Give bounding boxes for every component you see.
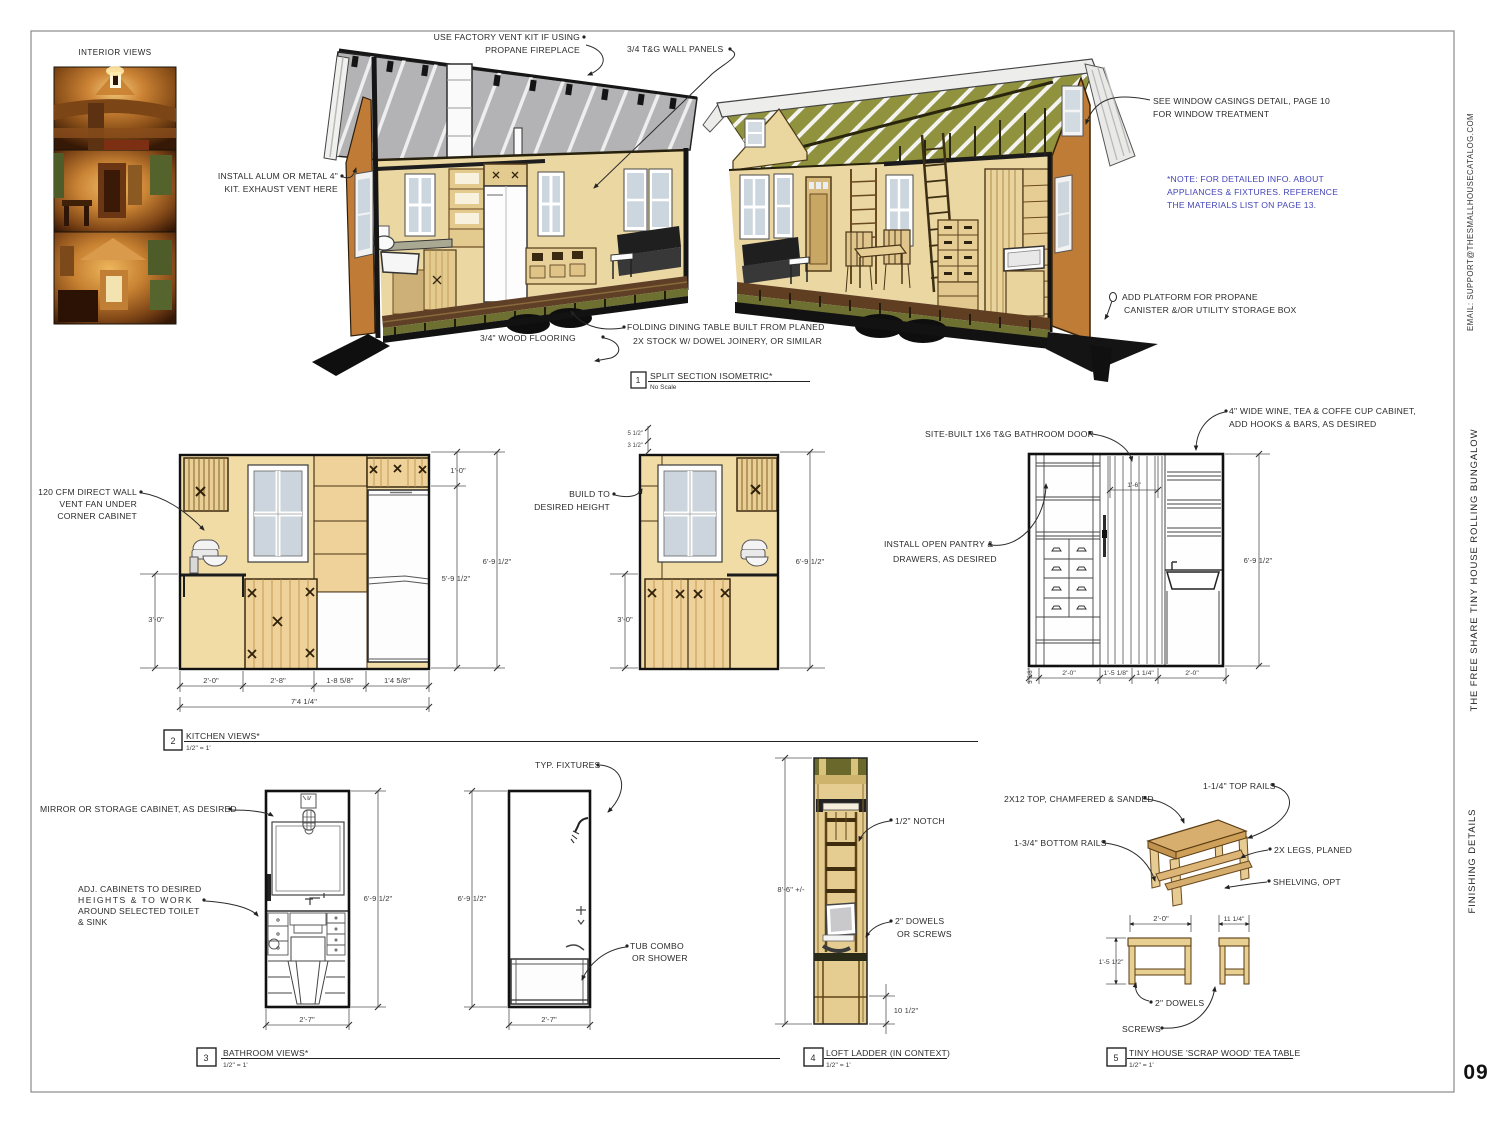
- svg-text:1/2" NOTCH: 1/2" NOTCH: [895, 816, 945, 826]
- svg-text:6'-9 1/2": 6'-9 1/2": [458, 894, 487, 903]
- svg-text:MIRROR OR STORAGE CABINET, AS: MIRROR OR STORAGE CABINET, AS DESIRED: [40, 804, 237, 814]
- svg-text:ADD HOOKS & BARS, AS DESIRED: ADD HOOKS & BARS, AS DESIRED: [1229, 419, 1376, 429]
- svg-text:INTERIOR VIEWS: INTERIOR VIEWS: [78, 48, 151, 57]
- svg-text:6'-9 1/2": 6'-9 1/2": [1244, 556, 1273, 565]
- svg-text:DRAWERS, AS DESIRED: DRAWERS, AS DESIRED: [893, 554, 997, 564]
- svg-text:1/2" = 1': 1/2" = 1': [223, 1062, 248, 1069]
- svg-text:1/2" = 1': 1/2" = 1': [186, 745, 211, 752]
- svg-text:1/2" = 1': 1/2" = 1': [826, 1062, 851, 1069]
- svg-text:10 1/2": 10 1/2": [894, 1006, 919, 1015]
- svg-text:2'-0": 2'-0": [1062, 670, 1076, 677]
- svg-text:2" DOWELS: 2" DOWELS: [1155, 998, 1204, 1008]
- svg-text:TINY HOUSE 'SCRAP WOOD' TEA TA: TINY HOUSE 'SCRAP WOOD' TEA TABLE: [1129, 1048, 1301, 1058]
- svg-text:SCREWS: SCREWS: [1122, 1024, 1161, 1034]
- svg-text:TYP. FIXTURES: TYP. FIXTURES: [535, 760, 601, 770]
- svg-text:4: 4: [810, 1053, 815, 1063]
- svg-text:LOFT LADDER (IN CONTEXT): LOFT LADDER (IN CONTEXT): [826, 1048, 950, 1058]
- svg-text:ADD PLATFORM FOR PROPANE: ADD PLATFORM FOR PROPANE: [1122, 292, 1258, 302]
- svg-text:09: 09: [1463, 1061, 1488, 1084]
- svg-text:OR SCREWS: OR SCREWS: [897, 929, 952, 939]
- svg-text:2X12 TOP, CHAMFERED & SANDED: 2X12 TOP, CHAMFERED & SANDED: [1004, 794, 1154, 804]
- svg-text:1/2" = 1': 1/2" = 1': [1129, 1062, 1154, 1069]
- svg-text:PROPANE FIREPLACE: PROPANE FIREPLACE: [485, 45, 580, 55]
- svg-text:8'-6" +/-: 8'-6" +/-: [777, 885, 805, 894]
- svg-text:SHELVING, OPT: SHELVING, OPT: [1273, 877, 1341, 887]
- svg-text:3'-0": 3'-0": [148, 615, 164, 624]
- svg-text:& SINK: & SINK: [78, 917, 107, 927]
- svg-text:2'-0": 2'-0": [203, 676, 219, 685]
- svg-text:FOR WINDOW TREATMENT: FOR WINDOW TREATMENT: [1153, 109, 1270, 119]
- svg-text:3: 3: [203, 1053, 208, 1063]
- svg-text:3/4" WOOD FLOORING: 3/4" WOOD FLOORING: [480, 333, 576, 343]
- svg-text:1'-0": 1'-0": [450, 466, 466, 475]
- svg-text:FINISHING DETAILS: FINISHING DETAILS: [1467, 809, 1478, 914]
- svg-text:HEIGHTS & TO WORK: HEIGHTS & TO WORK: [78, 895, 193, 905]
- svg-text:11 1/4": 11 1/4": [1224, 916, 1245, 923]
- svg-text:SEE WINDOW CASINGS DETAIL, PAG: SEE WINDOW CASINGS DETAIL, PAGE 10: [1153, 96, 1330, 106]
- svg-text:1'-5 1/8": 1'-5 1/8": [1104, 670, 1129, 677]
- svg-text:1: 1: [636, 375, 641, 385]
- svg-text:USE FACTORY VENT KIT IF USING: USE FACTORY VENT KIT IF USING: [434, 32, 580, 42]
- svg-text:BATHROOM VIEWS*: BATHROOM VIEWS*: [223, 1048, 309, 1058]
- svg-text:2X STOCK W/ DOWEL JOINERY, OR: 2X STOCK W/ DOWEL JOINERY, OR SIMILAR: [633, 336, 822, 346]
- svg-text:VENT FAN UNDER: VENT FAN UNDER: [59, 499, 137, 509]
- svg-text:SPLIT SECTION ISOMETRIC*: SPLIT SECTION ISOMETRIC*: [650, 371, 773, 381]
- svg-text:ADJ. CABINETS TO DESIRED: ADJ. CABINETS TO DESIRED: [78, 884, 201, 894]
- svg-text:1'4 5/8": 1'4 5/8": [384, 676, 410, 685]
- svg-text:2'-0": 2'-0": [1153, 914, 1169, 923]
- svg-text:3 1/2": 3 1/2": [628, 443, 643, 449]
- svg-text:120 CFM DIRECT WALL: 120 CFM DIRECT WALL: [38, 487, 137, 497]
- svg-text:KITCHEN VIEWS*: KITCHEN VIEWS*: [186, 731, 260, 741]
- svg-text:DESIRED HEIGHT: DESIRED HEIGHT: [534, 502, 610, 512]
- svg-text:AROUND SELECTED TOILET: AROUND SELECTED TOILET: [78, 906, 200, 916]
- svg-text:5: 5: [1113, 1053, 1118, 1063]
- svg-text:4" WIDE WINE, TEA & COFFE CUP: 4" WIDE WINE, TEA & COFFE CUP CABINET,: [1229, 406, 1416, 416]
- svg-text:THE FREE SHARE TINY HOUSE ROLL: THE FREE SHARE TINY HOUSE ROLLING BUNGAL…: [1469, 429, 1480, 712]
- svg-text:1'-6": 1'-6": [1127, 482, 1141, 489]
- svg-text:1'-5 1/2": 1'-5 1/2": [1099, 959, 1124, 966]
- svg-text:SITE-BUILT 1X6 T&G BATHROOM DO: SITE-BUILT 1X6 T&G BATHROOM DOOR: [925, 429, 1094, 439]
- svg-text:EMAIL: SUPPORT@THESMALLHOUSECA: EMAIL: SUPPORT@THESMALLHOUSECATALOG.COM: [1466, 113, 1475, 331]
- svg-text:3/4 T&G WALL PANELS: 3/4 T&G WALL PANELS: [627, 44, 724, 54]
- svg-text:OR SHOWER: OR SHOWER: [632, 953, 688, 963]
- svg-text:3'-0": 3'-0": [617, 615, 633, 624]
- svg-text:2'-0": 2'-0": [1185, 670, 1199, 677]
- svg-text:1-3/4" BOTTOM RAILS: 1-3/4" BOTTOM RAILS: [1014, 838, 1107, 848]
- svg-text:6'-9 1/2": 6'-9 1/2": [483, 557, 512, 566]
- svg-text:TUB COMBO: TUB COMBO: [630, 941, 684, 951]
- svg-text:No Scale: No Scale: [650, 384, 677, 391]
- svg-text:7'4 1/4": 7'4 1/4": [291, 697, 317, 706]
- svg-text:2'-7": 2'-7": [299, 1015, 315, 1024]
- svg-text:2X LEGS, PLANED: 2X LEGS, PLANED: [1274, 845, 1352, 855]
- svg-text:*NOTE: FOR DETAILED INFO. ABOU: *NOTE: FOR DETAILED INFO. ABOUT: [1167, 174, 1324, 184]
- svg-text:1-8 5/8": 1-8 5/8": [326, 676, 353, 685]
- svg-text:2" DOWELS: 2" DOWELS: [895, 916, 944, 926]
- svg-text:2'-7": 2'-7": [541, 1015, 557, 1024]
- svg-text:5 1/2": 5 1/2": [628, 431, 643, 437]
- svg-text:3 5/8": 3 5/8": [1028, 668, 1034, 683]
- svg-text:6'-9 1/2": 6'-9 1/2": [364, 894, 393, 903]
- svg-text:BUILD TO: BUILD TO: [569, 489, 610, 499]
- svg-text:2: 2: [170, 736, 175, 746]
- svg-text:THE MATERIALS LIST ON PAGE 13.: THE MATERIALS LIST ON PAGE 13.: [1167, 200, 1316, 210]
- svg-text:CORNER CABINET: CORNER CABINET: [57, 511, 137, 521]
- svg-text:APPLIANCES & FIXTURES. REFEREN: APPLIANCES & FIXTURES. REFERENCE: [1167, 187, 1338, 197]
- svg-text:1-1/4" TOP RAILS: 1-1/4" TOP RAILS: [1203, 781, 1276, 791]
- svg-text:1 1/4": 1 1/4": [1136, 670, 1154, 677]
- svg-text:2'-8": 2'-8": [270, 676, 286, 685]
- svg-text:5'-9 1/2": 5'-9 1/2": [442, 574, 471, 583]
- svg-text:CANISTER &/OR UTILITY STORAGE: CANISTER &/OR UTILITY STORAGE BOX: [1124, 305, 1297, 315]
- svg-text:FOLDING DINING TABLE BUILT FRO: FOLDING DINING TABLE BUILT FROM PLANED: [627, 322, 825, 332]
- svg-text:KIT. EXHAUST VENT HERE: KIT. EXHAUST VENT HERE: [225, 184, 339, 194]
- svg-text:INSTALL OPEN PANTRY &: INSTALL OPEN PANTRY &: [884, 539, 993, 549]
- svg-text:INSTALL ALUM OR METAL 4": INSTALL ALUM OR METAL 4": [218, 171, 338, 181]
- svg-text:6'-9 1/2": 6'-9 1/2": [796, 557, 825, 566]
